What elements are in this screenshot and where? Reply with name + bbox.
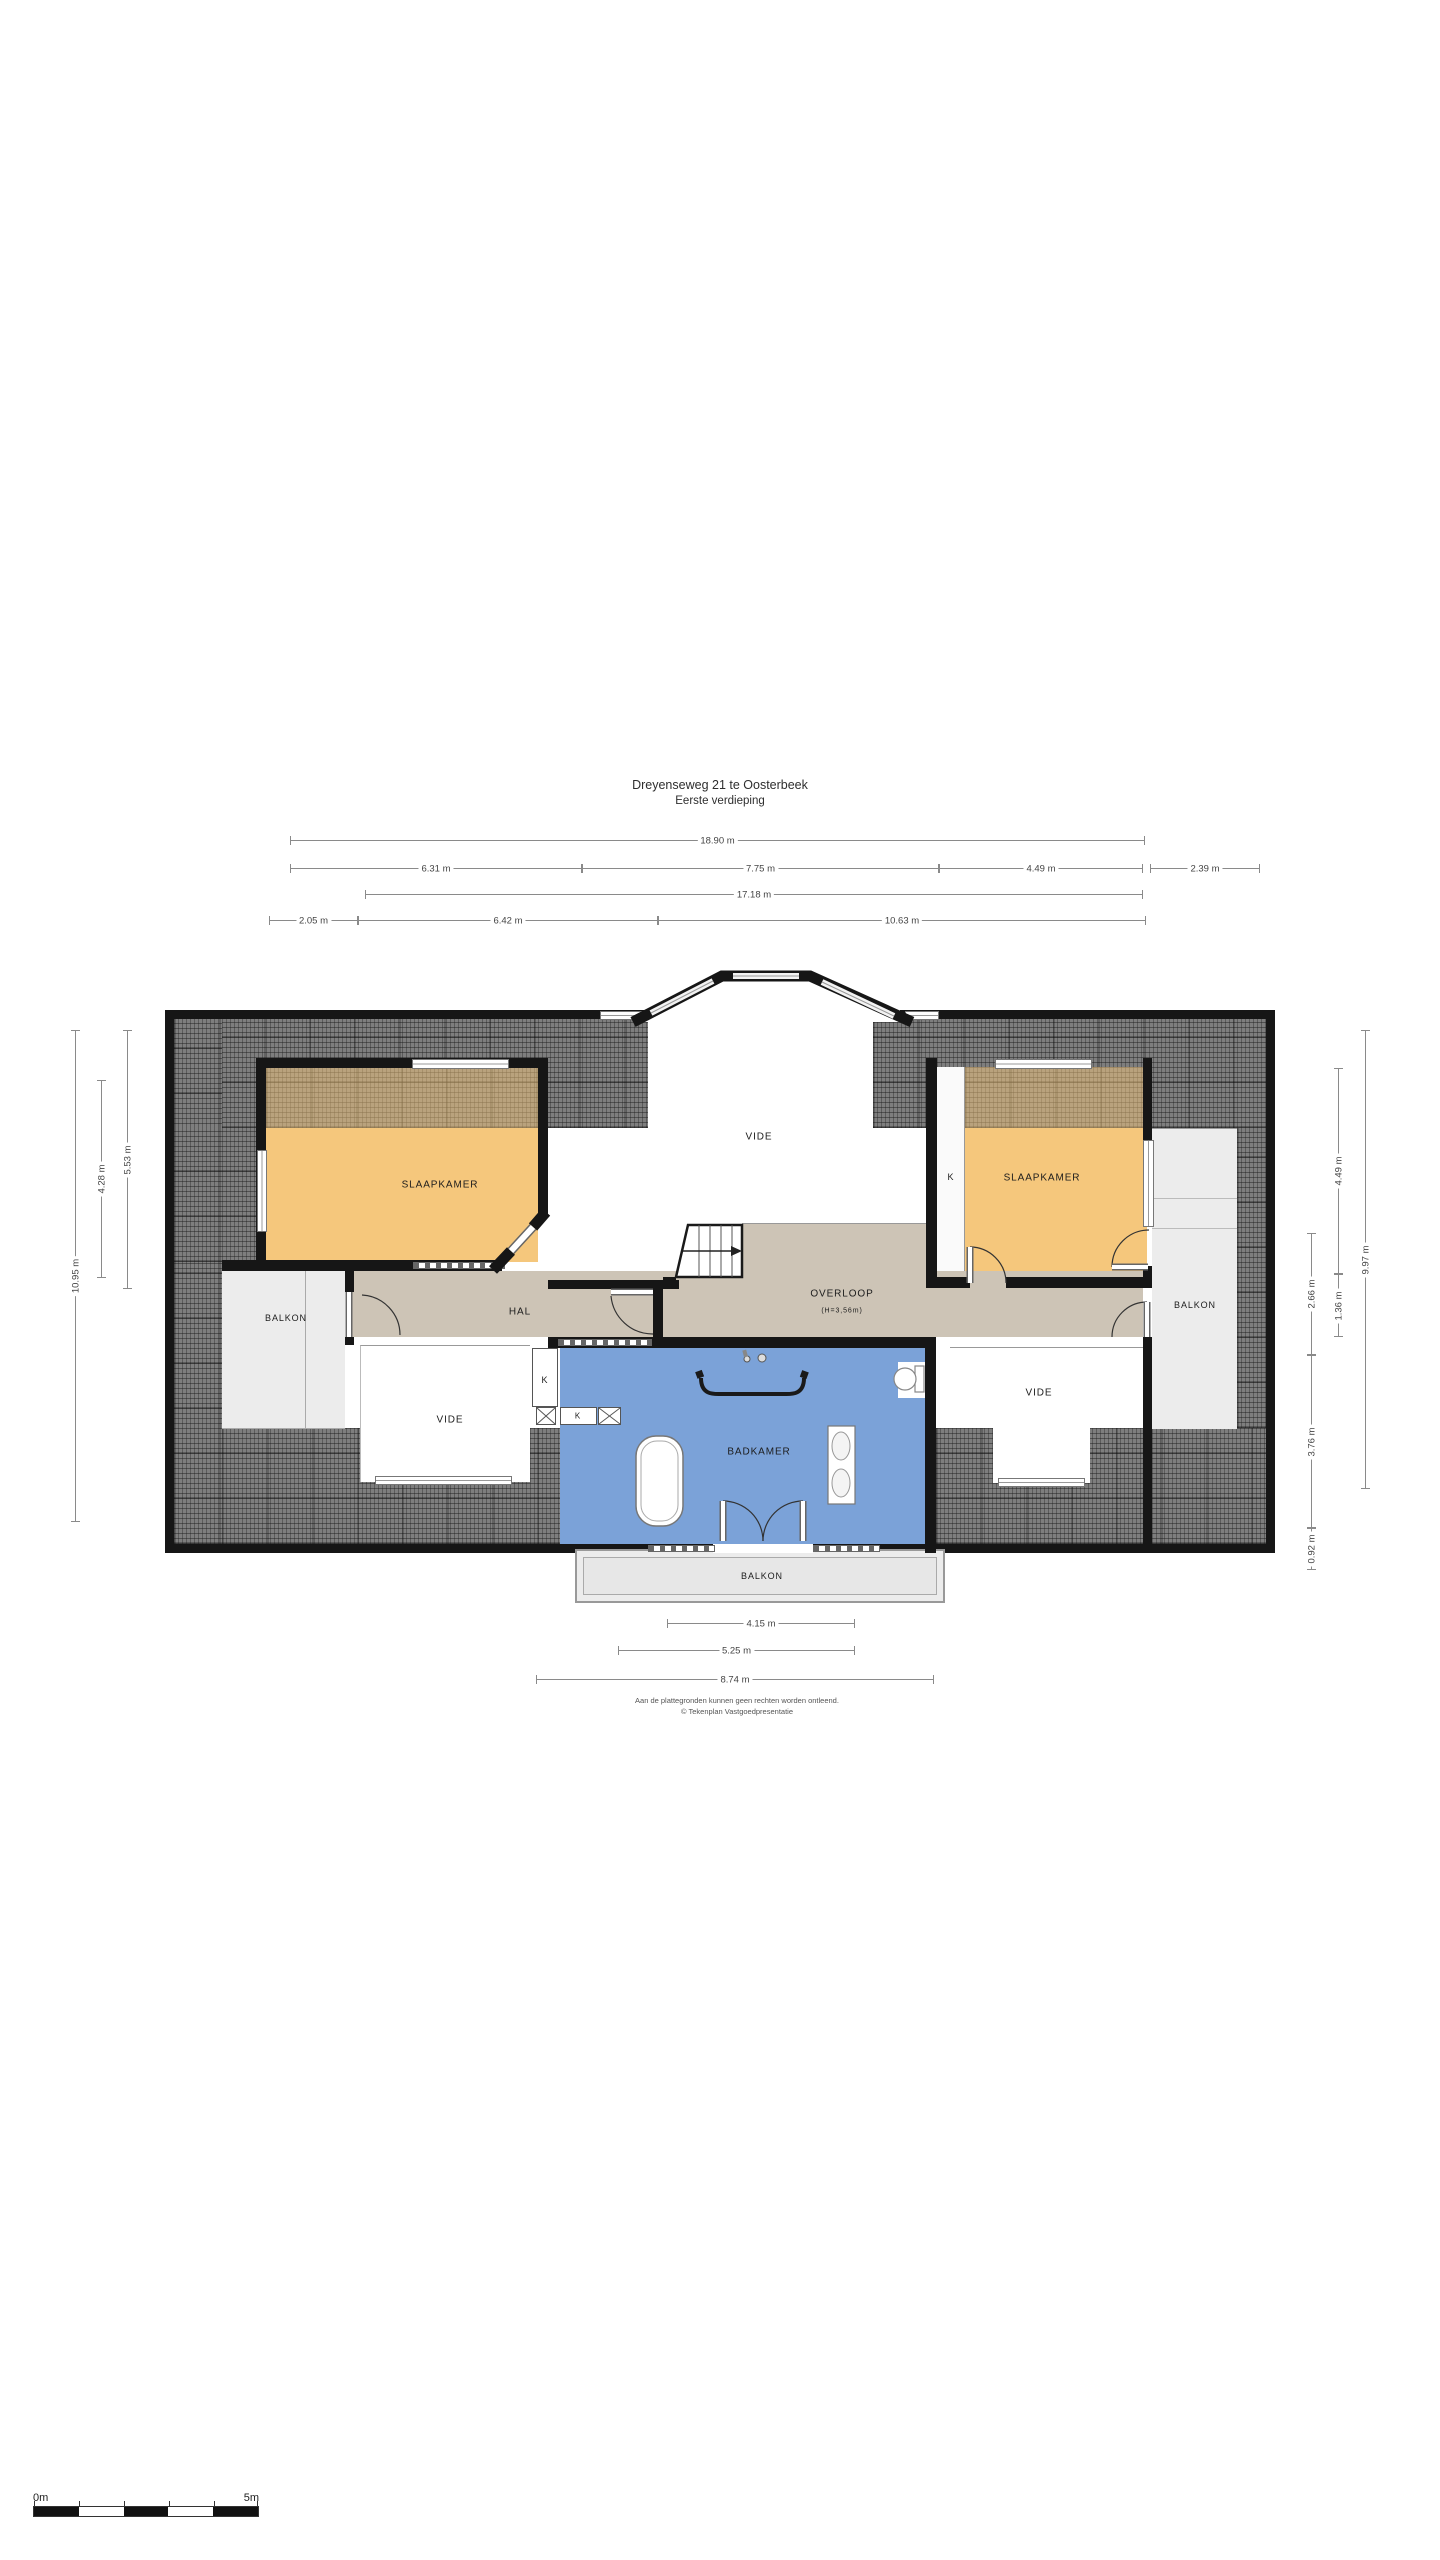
window-top-right-of-bay: [905, 1011, 939, 1020]
wall: [925, 1337, 936, 1553]
dimension-label: 1.36 m: [1333, 1288, 1344, 1323]
wall: [538, 1058, 548, 1214]
scale-start-label: 0m: [33, 2492, 48, 2504]
window-bottom-wall-2: [813, 1545, 880, 1552]
closet-label-bathroom-2: K: [575, 1412, 581, 1421]
room-label-balkon-right: BALKON: [1174, 1300, 1216, 1310]
room-label-balkon-bottom: BALKON: [741, 1571, 783, 1581]
dimension-2.39-m: 2.39 m: [1150, 862, 1260, 875]
window-vide-right-bottom: [998, 1478, 1085, 1487]
dimension-label: 17.18 m: [734, 889, 774, 900]
dimension-label: 3.76 m: [1306, 1424, 1317, 1459]
dimension-label: 2.39 m: [1187, 863, 1222, 874]
dimension-17.18-m: 17.18 m: [365, 888, 1143, 901]
bay-opening: [645, 1010, 900, 1019]
dimension-label: 5.25 m: [719, 1645, 754, 1656]
dimension-label: 6.31 m: [418, 863, 453, 874]
dimension-18.90-m: 18.90 m: [290, 834, 1145, 847]
balcony-right-rail-1: [1152, 1198, 1237, 1199]
dimension-label: 0.92 m: [1306, 1531, 1317, 1566]
div-shape: [34, 2507, 79, 2516]
line-shape: [651, 981, 713, 1013]
dimension-label: 4.28 m: [96, 1161, 107, 1196]
dimension-6.42-m: 6.42 m: [358, 914, 658, 927]
window-vide-left-bottom: [375, 1476, 512, 1485]
room-vide-right-notch: [993, 1428, 1090, 1483]
div-shape: [169, 2501, 170, 2507]
room-label-vide-right: VIDE: [1026, 1388, 1053, 1399]
dimension-9.97-m: 9.97 m: [1359, 1030, 1372, 1489]
dimension-label: 8.74 m: [717, 1674, 752, 1685]
wall: [663, 1277, 676, 1288]
roof-hatch-right-strip: [1237, 1128, 1266, 1428]
room-label-balkon-left: BALKON: [265, 1313, 307, 1323]
dimension-label: 6.42 m: [490, 915, 525, 926]
dimension-10.63-m: 10.63 m: [658, 914, 1146, 927]
dimension-label: 5.53 m: [122, 1142, 133, 1177]
dimension-3.76-m: 3.76 m: [1305, 1355, 1318, 1528]
room-label-overloop: OVERLOOP: [810, 1289, 873, 1300]
dimension-label: 9.97 m: [1360, 1242, 1371, 1277]
div-shape: [79, 2507, 124, 2516]
dimension-8.74-m: 8.74 m: [536, 1673, 934, 1686]
wall: [345, 1337, 354, 1345]
dimension-label: 2.05 m: [296, 915, 331, 926]
footer-line-2: © Tekenplan Vastgoedpresentatie: [437, 1706, 1037, 1717]
footer-note: Aan de plattegronden kunnen geen rechten…: [437, 1695, 1037, 1717]
door-gap-bottom-wall: [713, 1544, 813, 1553]
wall: [345, 1262, 354, 1292]
dimension-label: 18.90 m: [697, 835, 737, 846]
dimension-5.25-m: 5.25 m: [618, 1644, 855, 1657]
dimension-7.75-m: 7.75 m: [582, 862, 939, 875]
roof-overlay-slaapkamer-left: [266, 1067, 538, 1128]
window-bedroom-right-top: [995, 1059, 1092, 1069]
opening-badkamer-top: [558, 1339, 652, 1346]
closet-label-bathroom-1: K: [542, 1375, 549, 1385]
dimension-0.92-m: 0.92 m: [1305, 1528, 1318, 1570]
wall: [1006, 1277, 1152, 1288]
dimension-label: 2.66 m: [1306, 1276, 1317, 1311]
room-label-vide-left: VIDE: [437, 1415, 464, 1426]
room-label-vide-center: VIDE: [746, 1132, 773, 1143]
window-bedroom-left-top: [412, 1059, 509, 1069]
dimension-6.31-m: 6.31 m: [290, 862, 582, 875]
balcony-left-rail: [305, 1262, 306, 1428]
wall: [653, 1280, 663, 1340]
balcony-right: [1152, 1128, 1237, 1429]
dimension-10.95-m: 10.95 m: [69, 1030, 82, 1522]
window-top-left-of-bay: [600, 1011, 642, 1020]
dimension-label: 4.15 m: [743, 1618, 778, 1629]
dimension-label: 10.95 m: [70, 1256, 81, 1296]
scale-bar: 0m 5m: [33, 2492, 259, 2517]
dimension-4.28-m: 4.28 m: [95, 1080, 108, 1278]
div-shape: [213, 2507, 258, 2516]
washer-box-1: [536, 1407, 556, 1425]
line-shape: [651, 981, 713, 1013]
closet-label-right-bedroom: K: [948, 1172, 955, 1182]
page: { "title": {"line1": "Dreyenseweg 21 te …: [0, 0, 1440, 2560]
wall: [926, 1058, 937, 1277]
window-bedroom-left-side: [257, 1150, 267, 1232]
opening-hal-top: [413, 1262, 505, 1269]
room-vide-left: [360, 1345, 530, 1482]
footer-line-1: Aan de plattegronden kunnen geen rechten…: [437, 1695, 1037, 1706]
balcony-right-rail-2: [1152, 1228, 1237, 1229]
dimension-5.53-m: 5.53 m: [121, 1030, 134, 1289]
wall: [1143, 1058, 1152, 1140]
dimension-label: 4.49 m: [1333, 1153, 1344, 1188]
dimension-label: 10.63 m: [882, 915, 922, 926]
wall: [926, 1277, 970, 1288]
div-shape: [168, 2507, 213, 2516]
div-shape: [214, 2501, 215, 2507]
balcony-left: [222, 1262, 345, 1429]
room-label-hal: HAL: [509, 1307, 531, 1318]
room-label-slaapkamer-left: SLAAPKAMER: [402, 1180, 479, 1191]
room-overloop-upper: [742, 1223, 931, 1337]
scale-bar-segments: [33, 2506, 259, 2517]
div-shape: [124, 2507, 169, 2516]
washer-box-2: [598, 1407, 621, 1425]
window-bedroom-right-balcony: [1143, 1140, 1154, 1227]
roof-overlay-slaapkamer-right: [965, 1067, 1147, 1128]
roof-hatch-left-strip: [174, 1019, 222, 1544]
floor-plan: SLAAPKAMERVIDESLAAPKAMERHALOVERLOOP(H=3,…: [0, 0, 1440, 2560]
dimension-2.05-m: 2.05 m: [269, 914, 358, 927]
dimension-label: 7.75 m: [743, 863, 778, 874]
window-bottom-wall-1: [648, 1545, 715, 1552]
dimension-4.49-m: 4.49 m: [1332, 1068, 1345, 1274]
dimension-2.66-m: 2.66 m: [1305, 1233, 1318, 1355]
div-shape: [34, 2501, 35, 2507]
div-shape: 0m 5m: [33, 2492, 259, 2504]
roof-hatch-left-mid: [174, 1128, 256, 1262]
wall: [1143, 1266, 1152, 1288]
div-shape: [124, 2501, 125, 2507]
dimension-4.49-m: 4.49 m: [939, 862, 1143, 875]
dimension-label: 4.49 m: [1023, 863, 1058, 874]
room-label-badkamer: BADKAMER: [727, 1447, 790, 1458]
room-label-overloop-height: (H=3,56m): [821, 1308, 862, 1315]
div-shape: [79, 2501, 80, 2507]
wall: [1143, 1337, 1152, 1553]
toilet-nook: [898, 1362, 925, 1398]
dimension-4.15-m: 4.15 m: [667, 1617, 855, 1630]
roof-hatch-bottom-right: [936, 1428, 1266, 1544]
room-label-slaapkamer-right: SLAAPKAMER: [1004, 1173, 1081, 1184]
dimension-1.36-m: 1.36 m: [1332, 1274, 1345, 1337]
div-shape: [257, 2501, 258, 2507]
